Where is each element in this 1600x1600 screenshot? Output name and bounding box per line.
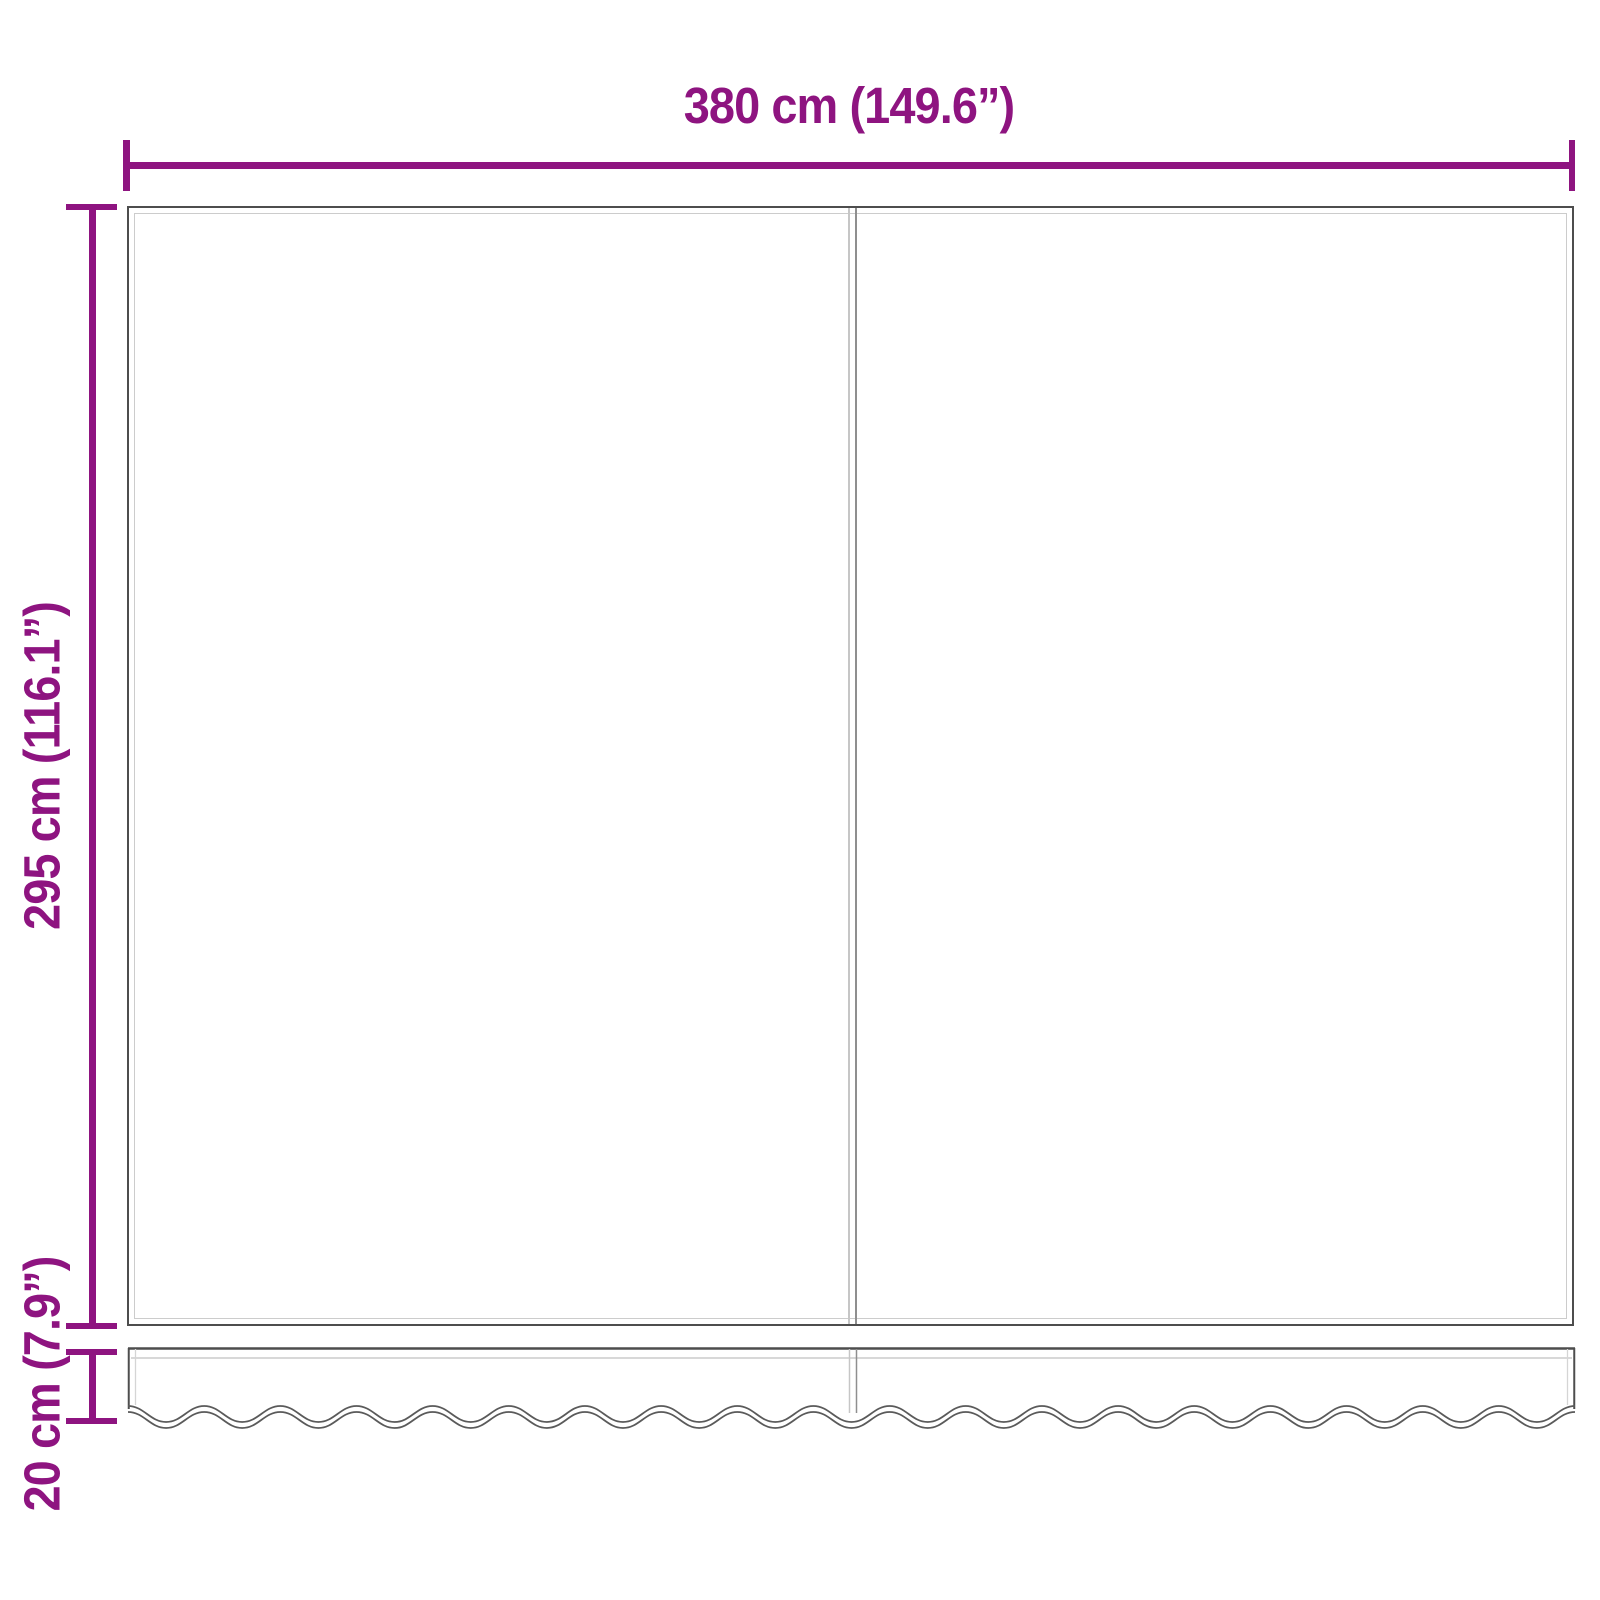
height-dimension-tick-top <box>66 204 117 211</box>
width-dimension-tick-left <box>123 140 130 191</box>
width-dimension-label: 380 cm (149.6”) <box>181 80 1517 131</box>
valance-strip <box>127 1347 1576 1437</box>
fabric-center-seam-left <box>848 208 850 1324</box>
height-dimension-tick-bottom <box>66 1323 117 1330</box>
valance-scallop-edge-lower <box>128 1412 1575 1428</box>
valance-dimension-tick-top <box>66 1349 117 1356</box>
dimension-diagram: 380 cm (149.6”) 295 cm (116.1”) 20 cm (7… <box>0 0 1600 1600</box>
valance-dimension-label: 20 cm (7.9”) <box>17 1257 68 1512</box>
height-dimension-label: 295 cm (116.1”) <box>17 602 68 930</box>
height-dimension-line <box>89 207 96 1326</box>
width-dimension-tick-right <box>1569 140 1576 191</box>
awning-fabric-panel <box>127 206 1574 1326</box>
fabric-hem-stitch-line <box>134 213 1567 1319</box>
valance-dimension-line <box>89 1352 96 1421</box>
valance-dimension-tick-bottom <box>66 1418 117 1425</box>
fabric-center-seam-right <box>855 208 857 1324</box>
width-dimension-line <box>123 162 1575 169</box>
